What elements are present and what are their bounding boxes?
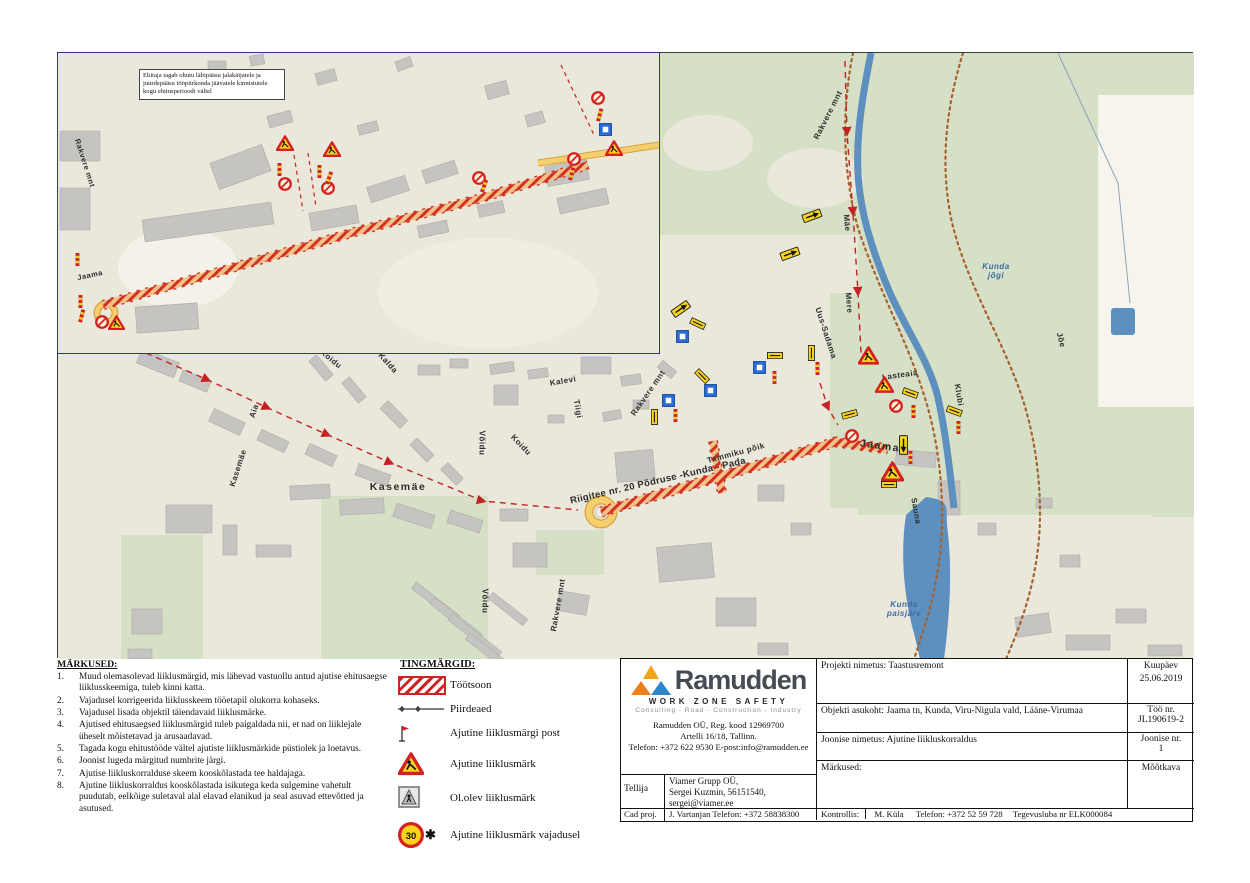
drawing-number-cell: Joonise nr. 1	[1127, 732, 1194, 760]
legend-title: TINGMÄRGID:	[400, 659, 626, 670]
drawing-sheet: Rakvere mntMäeMereUus-SadamaJaamaLasteai…	[0, 0, 1250, 883]
clearing	[378, 238, 598, 348]
building	[1148, 645, 1182, 656]
note-number: 6.	[57, 756, 68, 767]
note-number: 1.	[57, 672, 68, 695]
note-item: 2.Vajadusel korrigeerida liiklusskeem tö…	[57, 696, 389, 707]
legend-item-warn: Ajutine liiklusmärk	[396, 749, 626, 779]
note-text: Ajutine liikluskorraldus kooskõlastada i…	[68, 781, 389, 815]
date-cell: Kuupäev 25.06.2019	[1127, 659, 1194, 703]
building	[716, 598, 756, 626]
building	[290, 484, 331, 500]
note-text: Tagada kogu ehitustööde vältel ajutiste …	[68, 744, 389, 755]
note-item: 3.Vajadusel lisada objektil täiendavaid …	[57, 708, 389, 719]
tellija-label: Tellija	[621, 775, 664, 809]
note-item: 8.Ajutine liikluskorraldus kooskõlastada…	[57, 781, 389, 815]
legend-label: Ajutine liiklusmärgi post	[450, 727, 560, 739]
notes-section: MÄRKUSED: 1.Muud olemasolevad liiklusmär…	[57, 659, 389, 816]
building	[581, 357, 611, 374]
building	[633, 400, 649, 409]
note-text: Joonist lugeda märgitud numbrite järgi.	[68, 756, 389, 767]
note-item: 4.Ajutised ehitusaegsed liiklusmärgid tu…	[57, 720, 389, 743]
building	[60, 188, 90, 230]
building	[500, 509, 528, 521]
project-name-cell: Projekti nimetus: Taastusremont	[816, 659, 1127, 703]
logo-cell: Ramudden WORK ZONE SAFETY Consulting - R…	[621, 659, 816, 774]
legend-label: Töötsoon	[450, 679, 492, 691]
company-reg: Ramudden OÜ, Reg. kood 12969700	[621, 720, 816, 731]
note-item: 5.Tagada kogu ehitustööde vältel ajutist…	[57, 744, 389, 755]
legend-label: Ajutine liiklusmärk	[450, 758, 536, 770]
building	[758, 485, 784, 501]
legend-item-post: Ajutine liiklusmärgi post	[396, 721, 626, 745]
building	[978, 523, 996, 535]
building	[1066, 635, 1110, 650]
building	[1036, 498, 1052, 508]
legend-item-work: Töötsoon	[396, 674, 626, 696]
tellija-value: Viamer Grupp OÜ, Sergei Kuzmin, 56151540…	[664, 775, 816, 809]
kontrollis-label: Kontrollis:	[817, 809, 863, 819]
building	[128, 649, 152, 659]
kontrollis-row: Kontrollis: M. Küla Telefon: +372 52 59 …	[816, 808, 1194, 820]
building	[513, 543, 547, 567]
notes-title: MÄRKUSED:	[57, 659, 389, 671]
field-area	[1098, 95, 1194, 407]
building	[758, 643, 788, 655]
notes-list: 1.Muud olemasolevad liiklusmärgid, mis l…	[57, 672, 389, 815]
svg-text:30: 30	[406, 831, 417, 842]
work-icon	[396, 676, 450, 695]
building	[256, 545, 291, 557]
building	[166, 505, 212, 533]
legend-item-oldsign: Ol.olev liiklusmärk	[396, 783, 626, 813]
building	[60, 131, 100, 161]
note-number: 8.	[57, 781, 68, 815]
work-number-cell: Töö nr. JL190619-2	[1127, 703, 1194, 732]
building	[1116, 609, 1146, 623]
building	[494, 385, 518, 405]
s30-icon: 30✱	[396, 822, 450, 848]
cadproj-row: Cad proj. J. Vartanjan Telefon: +372 588…	[621, 808, 816, 820]
building	[791, 523, 811, 535]
title-block: Ramudden WORK ZONE SAFETY Consulting - R…	[620, 658, 1193, 822]
building	[615, 449, 655, 482]
scale-cell: Mõõtkava	[1127, 760, 1194, 808]
building	[340, 498, 385, 515]
legend-section: TINGMÄRGID: TöötsoonPiirdeaedAjutine lii…	[396, 659, 626, 857]
object-location-cell: Objekti asukoht: Jaama tn, Kunda, Viru-N…	[816, 703, 1127, 732]
legend-list: TöötsoonPiirdeaedAjutine liiklusmärgi po…	[396, 674, 626, 853]
cadproj-label: Cad proj.	[621, 809, 664, 821]
tellija-row: Tellija Viamer Grupp OÜ, Sergei Kuzmin, …	[621, 774, 816, 808]
legend-label: Ol.olev liiklusmärk	[450, 792, 536, 804]
note-number: 5.	[57, 744, 68, 755]
legend-item-s30: 30✱Ajutine liiklusmärk vajadusel	[396, 817, 626, 853]
note-text: Ajutised ehitusaegsed liiklusmärgid tule…	[68, 720, 389, 743]
note-number: 4.	[57, 720, 68, 743]
kontrollis-license: Tegevusluba nr ELK000084	[1013, 809, 1113, 819]
company-phone: Telefon: +372 622 9530 E-post:info@ramud…	[621, 742, 816, 753]
building	[135, 303, 199, 333]
legend-label: Piirdeaed	[450, 703, 492, 715]
inset-map: Rakvere mntJaama Ehitaja tagab ohutu läb…	[57, 52, 660, 354]
kontrollis-phone: Telefon: +372 52 59 728	[916, 809, 1011, 819]
building	[223, 525, 237, 555]
main-map: Rakvere mntMäeMereUus-SadamaJaamaLasteai…	[57, 52, 1193, 658]
note-item: 1.Muud olemasolevad liiklusmärgid, mis l…	[57, 672, 389, 695]
note-text: Vajadusel korrigeerida liiklusskeem tööe…	[68, 696, 389, 707]
oldsign-icon	[396, 786, 450, 810]
note-text: Ajutise liikluskorralduse skeem kooskõla…	[68, 769, 389, 780]
builder-note-box: Ehitaja tagab ohutu läbipääsu jalakäijat…	[139, 69, 285, 100]
legend-label: Ajutine liiklusmärk vajadusel	[450, 829, 580, 841]
building	[548, 415, 564, 423]
company-address: Artelli 16/18, Tallinn.	[621, 731, 816, 742]
note-number: 3.	[57, 708, 68, 719]
building	[418, 365, 440, 375]
building	[1060, 555, 1080, 567]
building	[132, 609, 162, 634]
legend-item-fence: Piirdeaed	[396, 700, 626, 717]
clearing	[663, 115, 753, 171]
green-patch	[1153, 407, 1194, 517]
brand-subtagline: Consulting - Road - Construction - Indus…	[621, 707, 816, 714]
fence-icon	[396, 704, 450, 714]
drawing-name-cell: Joonise nimetus: Ajutine liikluskorraldu…	[816, 732, 1127, 760]
brand-name: Ramudden	[675, 665, 807, 696]
building	[657, 543, 715, 583]
building	[450, 359, 468, 368]
ramudden-logo-icon	[631, 663, 671, 697]
remarks-cell: Märkused:	[816, 760, 1127, 808]
note-number: 2.	[57, 696, 68, 707]
note-number: 7.	[57, 769, 68, 780]
note-item: 7.Ajutise liikluskorralduse skeem kooskõ…	[57, 769, 389, 780]
note-item: 6.Joonist lugeda märgitud numbrite järgi…	[57, 756, 389, 767]
pond	[1111, 308, 1135, 335]
note-text: Vajadusel lisada objektil täiendavaid li…	[68, 708, 389, 719]
brand-tagline: WORK ZONE SAFETY	[621, 697, 816, 706]
building	[895, 449, 936, 467]
note-text: Muud olemasolevad liiklusmärgid, mis läh…	[68, 672, 389, 695]
cadproj-value: J. Vartanjan Telefon: +372 58838300	[664, 809, 816, 821]
building	[249, 54, 265, 66]
post-icon	[396, 724, 450, 742]
kontrollis-name: M. Küla	[865, 809, 913, 819]
warn-icon	[396, 752, 450, 775]
